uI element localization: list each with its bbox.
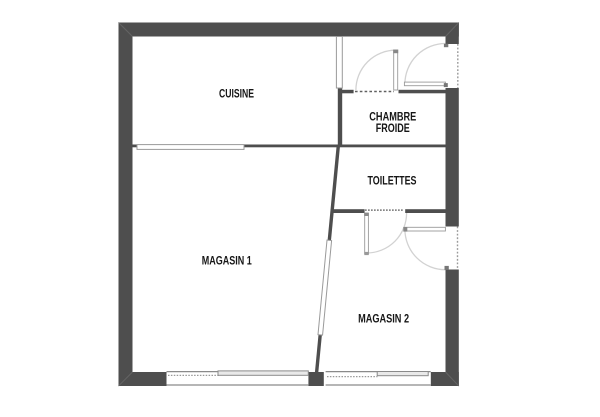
svg-text:FROIDE: FROIDE [376, 121, 410, 135]
svg-text:MAGASIN 1: MAGASIN 1 [202, 253, 252, 267]
svg-text:MAGASIN 2: MAGASIN 2 [358, 311, 409, 325]
svg-text:CUISINE: CUISINE [219, 87, 254, 101]
svg-text:TOILETTES: TOILETTES [368, 173, 417, 187]
